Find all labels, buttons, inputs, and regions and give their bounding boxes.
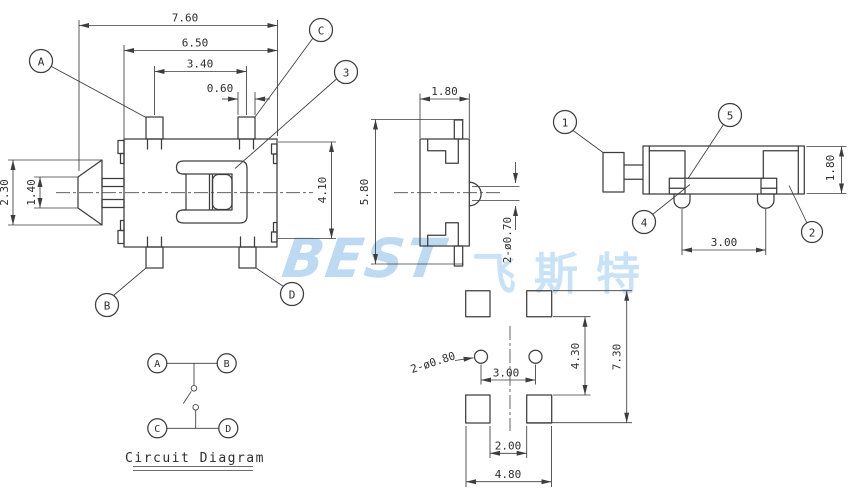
end-cavity-profile bbox=[649, 151, 798, 179]
dim-pcb-pad-gap-v: 4.30 bbox=[569, 343, 582, 370]
end-dimensions: 1.80 3.00 bbox=[682, 147, 847, 256]
end-terminal-block-right bbox=[761, 178, 777, 194]
drawing-canvas: BEST 飞斯特 bbox=[0, 0, 856, 494]
terminal-A: A bbox=[154, 359, 160, 370]
terminal-C: C bbox=[154, 424, 160, 435]
circuit-title: Circuit Diagram bbox=[125, 451, 265, 466]
circuit-title-underline bbox=[133, 467, 253, 471]
side-pin-bottom bbox=[454, 246, 462, 266]
side-pin-top bbox=[454, 120, 462, 139]
end-pin-right bbox=[758, 194, 775, 208]
end-terminal-block-left bbox=[669, 178, 685, 194]
dim-pin-pitch: 3.40 bbox=[187, 58, 214, 71]
side-pin-dome bbox=[469, 182, 481, 206]
end-pin-left bbox=[674, 194, 690, 208]
switch-contact-bottom bbox=[193, 405, 199, 411]
pcb-pad-bottom-left bbox=[466, 395, 490, 423]
dim-inner-height: 4.10 bbox=[316, 177, 329, 204]
circuit-diagram: A B C D Circuit Diagram bbox=[125, 354, 265, 471]
end-callouts: 1 5 4 2 bbox=[554, 104, 823, 243]
callout-D: D bbox=[289, 289, 296, 302]
front-view bbox=[56, 117, 313, 268]
front-slider-mechanism bbox=[177, 161, 248, 223]
side-step-bottom bbox=[428, 223, 459, 246]
side-step-top bbox=[428, 139, 459, 163]
end-knob bbox=[603, 153, 624, 193]
dim-pcb-pad-gap-h: 2.00 bbox=[495, 440, 522, 453]
pcb-pad-bottom-right bbox=[527, 395, 552, 423]
front-slider-contact bbox=[213, 175, 233, 210]
callout-3: 3 bbox=[343, 67, 350, 80]
callout-C: C bbox=[318, 25, 325, 38]
dim-side-pin-dia: 2-ø0.70 bbox=[501, 217, 514, 263]
dim-knob-height: 2.30 bbox=[0, 179, 11, 206]
dim-end-pin-pitch: 3.00 bbox=[711, 236, 738, 249]
front-edge-tabs bbox=[118, 141, 277, 244]
callout-A: A bbox=[38, 56, 45, 69]
dim-overall-height: 5.80 bbox=[358, 179, 371, 206]
front-knob-prong-top bbox=[102, 179, 124, 187]
terminal-B: B bbox=[224, 359, 230, 370]
callout-B: B bbox=[104, 300, 111, 313]
switch-lever bbox=[183, 391, 191, 403]
side-view bbox=[394, 120, 503, 266]
front-pad-C bbox=[238, 117, 255, 139]
end-knob-neck bbox=[624, 165, 643, 179]
circuit-wires bbox=[167, 363, 219, 428]
pcb-pad-top-left bbox=[466, 291, 490, 317]
dim-pad-width: 0.60 bbox=[207, 82, 234, 95]
technical-drawing: 7.60 6.50 3.40 0.60 2.30 1.40 4.10 5.80 bbox=[0, 0, 856, 494]
callout-2: 2 bbox=[809, 227, 816, 240]
dim-pcb-total-w: 4.80 bbox=[495, 468, 522, 481]
dim-pcb-total-h: 7.30 bbox=[611, 344, 624, 371]
switch-contact-top bbox=[191, 386, 197, 392]
front-dimensions: 7.60 6.50 3.40 0.60 2.30 1.40 4.10 5.80 bbox=[0, 12, 464, 265]
dim-side-width: 1.80 bbox=[431, 85, 458, 98]
front-pad-D bbox=[239, 247, 256, 268]
front-pad-A bbox=[146, 117, 163, 139]
dim-overall-width: 7.60 bbox=[172, 12, 199, 25]
dim-pcb-hole: 2-ø0.80 bbox=[409, 349, 457, 376]
pcb-dimensions: 2-ø0.80 3.00 4.30 7.30 2.00 4.80 bbox=[409, 291, 632, 487]
callout-5: 5 bbox=[727, 110, 734, 123]
dim-pcb-hole-pitch: 3.00 bbox=[493, 367, 520, 380]
pcb-hole-right bbox=[529, 350, 542, 363]
pcb-view bbox=[466, 291, 552, 431]
dim-end-height: 1.80 bbox=[824, 155, 837, 182]
dim-body-width: 6.50 bbox=[182, 37, 209, 50]
front-pad-B bbox=[146, 247, 163, 268]
pcb-pad-top-right bbox=[527, 291, 552, 317]
pcb-hole-left bbox=[475, 350, 488, 363]
circuit-stems bbox=[194, 363, 196, 428]
callout-1: 1 bbox=[562, 117, 569, 130]
end-body-outline bbox=[643, 146, 804, 194]
terminal-D: D bbox=[225, 424, 231, 435]
end-inner-walls bbox=[649, 146, 798, 194]
callout-4: 4 bbox=[641, 217, 648, 230]
dim-knob-tip-height: 1.40 bbox=[25, 179, 38, 206]
front-knob-prong-bottom bbox=[102, 200, 124, 208]
